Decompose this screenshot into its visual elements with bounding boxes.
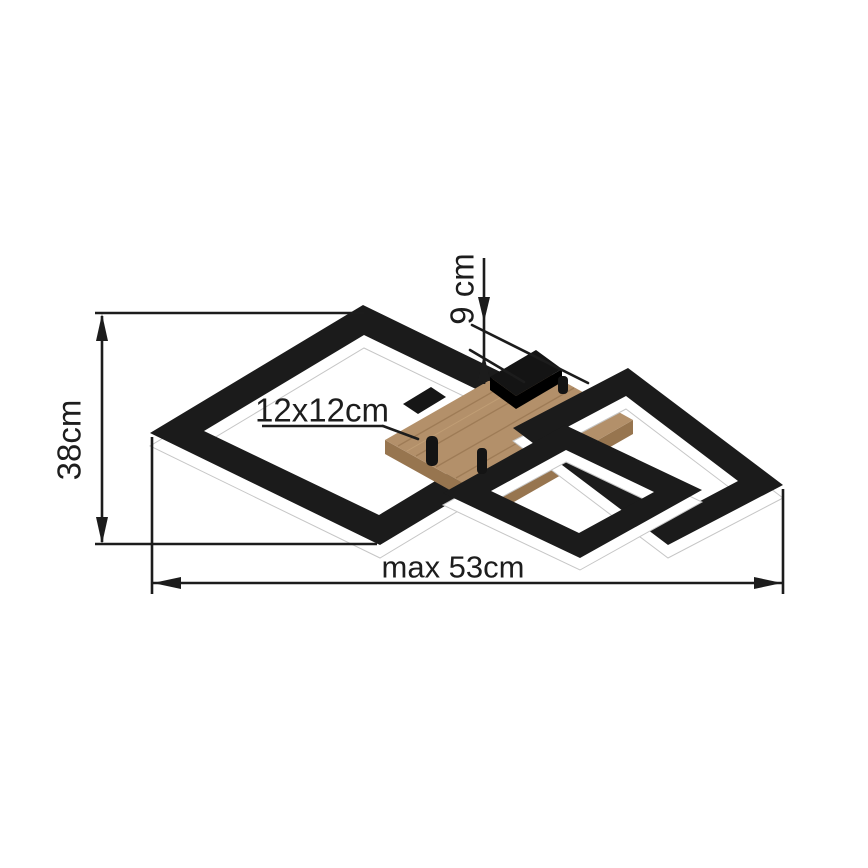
width-arrow-right: [754, 577, 782, 589]
depth-dimension-label: 9 cm: [446, 253, 479, 325]
height-dimension-label: 38cm: [53, 400, 86, 481]
standoff-pin-right: [558, 376, 568, 394]
canopy-dimension-label: 12x12cm: [255, 394, 389, 427]
width-arrow-left: [153, 577, 181, 589]
height-arrow-up: [96, 314, 108, 341]
standoff-pin-left: [426, 436, 438, 466]
width-dimension-label: max 53cm: [382, 552, 525, 583]
diagram-canvas: [0, 0, 868, 868]
fixture-illustration: [150, 305, 783, 570]
standoff-pin-center: [477, 448, 487, 474]
height-arrow-down: [96, 517, 108, 544]
dimension-diagram: 38cm 9 cm 12x12cm max 53cm: [0, 0, 868, 868]
